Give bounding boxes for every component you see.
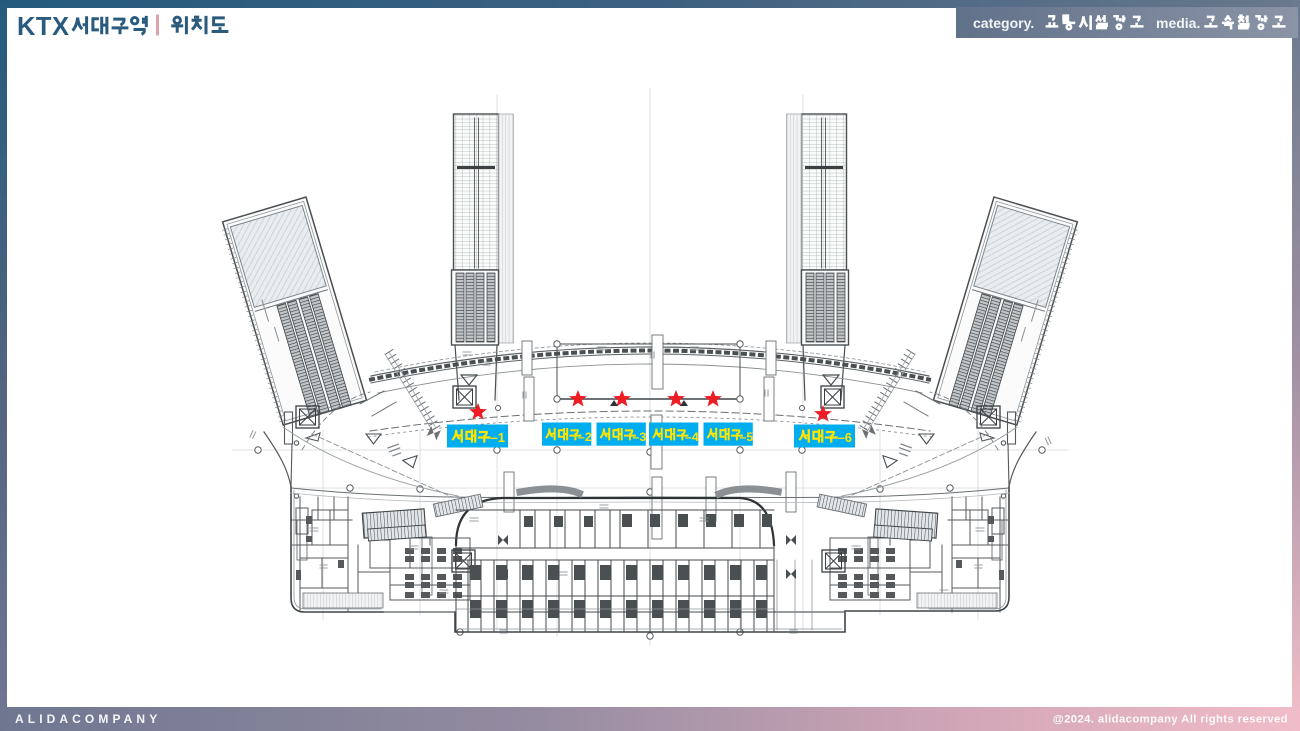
svg-text:–4: –4 (685, 430, 699, 444)
svg-text:–1: –1 (491, 430, 505, 445)
svg-text:–2: –2 (578, 430, 592, 444)
svg-text:KTX: KTX (17, 13, 70, 41)
svg-text:media.: media. (1156, 15, 1200, 31)
svg-text:ALIDACOMPANY: ALIDACOMPANY (15, 712, 161, 726)
svg-text:category.: category. (973, 15, 1034, 31)
svg-text:–3: –3 (633, 430, 647, 444)
svg-text:–6: –6 (838, 430, 852, 445)
svg-text:@2024. alidacompany All rights: @2024. alidacompany All rights reserved (1053, 714, 1288, 726)
svg-text:–5: –5 (740, 430, 754, 444)
